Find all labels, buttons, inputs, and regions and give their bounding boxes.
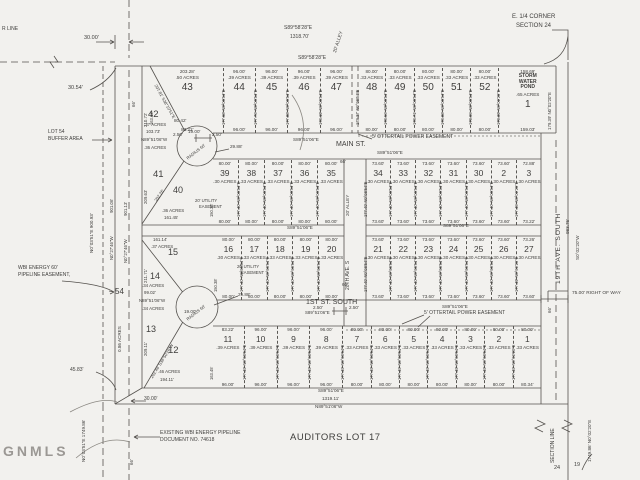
- lot-20-acres: .33 ACRES: [320, 255, 343, 260]
- lot-45-acres: .39 ACRES: [260, 75, 283, 80]
- existing-pipeline-label-1: EXISTING WBI ENERGY PIPELINE: [160, 431, 240, 436]
- lot-2-width-top: 80.00': [493, 327, 505, 332]
- lot-35-cell: 80.00'35.33 ACRES80.00'177.40' N0°08'54"…: [317, 160, 344, 225]
- lot-39-number: 39: [220, 168, 229, 178]
- lot-3-cell: 72.88'3.30 ACRES73.22'177.45' N0°02'20"E: [516, 160, 541, 225]
- stack-l-acres2: .34 ACRES: [142, 307, 164, 312]
- lot-30-number: 30: [474, 168, 483, 178]
- lot-52-cell: 80.00'.33 ACRES5280.00'179.05' N0°08'54"…: [470, 68, 498, 133]
- lot-26-width-bottom: 73.60': [498, 294, 510, 299]
- lot-39-width-top: 80.00': [219, 161, 231, 166]
- lot-34-side-dim: 177.40' N0°08'54"E: [363, 182, 368, 217]
- lot-22-cell: 73.60'22.30 ACRES73.60'177.40' N0°08'54"…: [390, 236, 415, 300]
- lot-22-number: 22: [398, 244, 407, 254]
- lot-35-number: 35: [326, 168, 335, 178]
- lot-24-number: 24: [449, 244, 458, 254]
- lot-37-width-top: 80.00': [272, 161, 284, 166]
- lot-51-side-dim: 178.88' N0°08'54"E: [440, 90, 445, 125]
- lot-43-acres: .50 ACRES: [176, 75, 199, 80]
- lot-40-width: 161.45': [164, 216, 178, 221]
- lot-21-acres: .30 ACRES: [366, 255, 389, 260]
- lot-27-width-top: 73.26': [523, 237, 535, 242]
- lot-16-width-top: 80.00': [222, 237, 234, 242]
- lot-4-width-bottom: 80.00': [436, 382, 448, 387]
- lot-1-number: 1: [525, 99, 531, 110]
- lot-47-side-dim: 178.19' N0°08'54"E: [318, 90, 323, 125]
- lot-2-width-bottom: 80.00': [493, 382, 505, 387]
- dim-66-c: 66': [132, 101, 137, 107]
- lot-49-number: 49: [394, 82, 405, 93]
- lot-3-side-dim: 177.45' N0°02'20"E: [514, 182, 519, 217]
- lot-18-cell: 80.00'18.33 ACRES80.00'177.40' N0°08'54"…: [267, 236, 293, 300]
- lot-37-cell: 80.00'37.33 ACRES80.00'177.40' N0°08'54"…: [264, 160, 291, 225]
- lot-18-number: 18: [275, 244, 284, 254]
- lot-46-acres: .39 ACRES: [292, 75, 315, 80]
- dim-45-83: 45.83': [70, 368, 83, 373]
- dist-bottom: 1319.11': [322, 397, 339, 402]
- stack-u-dist: 103.73': [146, 130, 160, 135]
- lot-2-side-dim: 177.40' N0°08'54"E: [489, 182, 494, 217]
- dim-179-39: 179.39' N0°02'20"E: [548, 92, 553, 130]
- lot-19-width-top: 80.00': [300, 237, 312, 242]
- lot-2-acres: .33 ACRES: [487, 345, 510, 350]
- section-line-label: SECTION LINE: [551, 428, 556, 463]
- lot-21-number: 21: [373, 244, 382, 254]
- lot-49-side-dim: 178.56' N0°08'54"E: [383, 90, 388, 125]
- lot-9-width-top: 96.00': [287, 327, 299, 332]
- lot-20-cell: 80.00'20.33 ACRES80.00'177.40' N0°08'54"…: [318, 236, 344, 300]
- lot-5-width-bottom: 80.00': [408, 382, 420, 387]
- lot-34-number: 34: [373, 168, 382, 178]
- lot-22-side-dim: 177.40' N0°08'54"E: [388, 257, 393, 292]
- lot-54-acres: 0.86 ACRES: [118, 326, 123, 352]
- lot-32-width-top: 73.60': [422, 161, 434, 166]
- dim-80-42: 80.42': [174, 119, 186, 124]
- lot-3-side-dim: 177.40' N0°08'54"E: [454, 345, 459, 380]
- lot-22-width-bottom: 73.60': [397, 294, 409, 299]
- lot-33-number: 33: [398, 168, 407, 178]
- lot-3-acres: .33 ACRES: [459, 345, 482, 350]
- lot-7-width-bottom: 80.00': [351, 382, 363, 387]
- lot-10-side-dim: 177.40' N0°08'54"E: [242, 345, 247, 380]
- dim-66-e: 66': [548, 307, 553, 313]
- section-19-number: 19: [574, 463, 580, 469]
- bearing-bottom-2: N89°51'06"W: [315, 405, 342, 410]
- lot-46-number: 46: [298, 82, 309, 93]
- dist-top: 1318.70': [290, 35, 309, 40]
- lot-4-cell: 80.00'4.33 ACRES80.00'177.40' N0°08'54"E: [427, 326, 455, 388]
- lot-25-cell: 73.60'25.30 ACRES73.60'177.40' N0°08'54"…: [466, 236, 491, 300]
- lot-44-width-top: 96.00': [233, 69, 245, 74]
- lot-34-width-top: 73.60': [372, 161, 384, 166]
- lot-16-acres: .30 ACRES: [217, 255, 240, 260]
- lot-24-width-top: 73.60': [447, 237, 459, 242]
- lot-9-side-dim: 177.40' N0°08'54"E: [275, 345, 280, 380]
- lot-31-cell: 73.60'31.30 ACRES73.60'177.40' N0°08'54"…: [440, 160, 465, 225]
- lot-12-acres: .46 ACRES: [158, 370, 180, 375]
- lot-23-acres: .30 ACRES: [417, 255, 440, 260]
- lot-25-acres: .30 ACRES: [467, 255, 490, 260]
- lot-51-acres: .33 ACRES: [445, 75, 468, 80]
- utility-easement-2b: EASEMENT: [241, 271, 264, 275]
- lot-30-side-dim: 177.40' N0°08'54"E: [464, 182, 469, 217]
- utility-easement-1a: 20' UTILITY: [195, 199, 217, 203]
- lot-20-width-top: 80.00': [325, 237, 337, 242]
- lot-51-width-top: 80.00': [450, 69, 462, 74]
- lot-3-width-top: 80.00': [464, 327, 476, 332]
- lot-5-number: 5: [411, 334, 416, 344]
- lot-39-acres: .30 ACRES: [213, 179, 236, 184]
- lot-24-side-dim: 177.40' N0°08'54"E: [438, 257, 443, 292]
- lot-10-number: 10: [256, 334, 265, 344]
- lot-52-width-top: 80.00': [479, 69, 491, 74]
- lot-50-number: 50: [423, 82, 434, 93]
- lot-23-side-dim: 177.40' N0°08'54"E: [413, 257, 418, 292]
- lot-14-number: 14: [150, 272, 160, 281]
- lot-1-width-top: 80.00': [521, 327, 533, 332]
- lot-44-cell: 96.00'.39 ACRES4496.00'177.68' N0°08'54"…: [223, 68, 255, 133]
- lot-11-width-bottom: 96.00': [222, 382, 234, 387]
- plat-map: 203.28'.50 ACRES4383.22'163.33'96.00'.39…: [0, 0, 640, 480]
- 19th-ave-south-label: 19TH AVE. SOUTH: [556, 213, 563, 284]
- lot-17-acres: .33 ACRES: [243, 255, 266, 260]
- lot-35-side-dim: 177.40' N0°08'54"E: [315, 182, 320, 217]
- lot-26-side-dim: 177.40' N0°08'54"E: [489, 257, 494, 292]
- lot-24-width-bottom: 73.60': [447, 294, 459, 299]
- lot-34-acres: .30 ACRES: [366, 179, 389, 184]
- bearing-bottom-1: S89°51'06"E: [318, 389, 344, 394]
- lot-20-side-dim: 177.40' N0°08'54"E: [316, 257, 321, 292]
- lot-2-side-dim: 177.40' N0°08'54"E: [482, 345, 487, 380]
- lot-8-cell: 96.00'8.39 ACRES96.00'177.40' N0°08'54"E: [309, 326, 342, 388]
- lot-44-number: 44: [234, 82, 245, 93]
- lot-2-number: 2: [497, 334, 502, 344]
- lot-12-width: 194.11': [160, 378, 174, 383]
- right-of-way-label: 75.00' RIGHT OF WAY: [572, 291, 621, 296]
- lot-27-side-dim: 177.49' N0°02'20"E: [514, 257, 519, 292]
- lot-31-side-dim: 177.40' N0°08'54"E: [438, 182, 443, 217]
- lot-48-cell: 80.00'.33 ACRES4880.00'178.37' N0°08'54"…: [358, 68, 385, 133]
- lot-1-side-dim: 177.40' N0°02'20"E: [511, 345, 516, 380]
- lot-5-cell: 80.00'5.33 ACRES80.00'177.40' N0°08'54"E: [399, 326, 427, 388]
- east-quarter-corner-1: E. 1/4 CORNER: [512, 14, 555, 20]
- lot-10-cell: 96.00'10.39 ACRES96.00'177.40' N0°08'54"…: [244, 326, 277, 388]
- lot-31-acres: .30 ACRES: [442, 179, 465, 184]
- stack-u-acres2: .36 ACRES: [144, 146, 166, 151]
- stack-l-acres1: .34 ACRES: [142, 284, 164, 289]
- lot-22-acres: .30 ACRES: [392, 255, 415, 260]
- bearing-west-a: N0°27'46"W: [110, 236, 115, 260]
- lot-51-width-bottom: 80.00': [450, 127, 462, 132]
- lot-1-side-dim: 179.39' N0°02'20"E: [496, 90, 501, 125]
- bearing-1st-st-e: S89°51'06"E: [442, 305, 468, 310]
- lot-45-cell: 96.00'.39 ACRES4596.00'177.76' N0°08'54"…: [255, 68, 287, 133]
- lot-27-width-bottom: 73.60': [523, 294, 535, 299]
- dim-30ft-bottom: 30.00': [144, 397, 157, 402]
- lot-27-number: 27: [524, 244, 533, 254]
- lot-38-width-top: 80.00': [245, 161, 257, 166]
- lot-11-number: 11: [223, 334, 232, 344]
- lot-9-width-bottom: 96.00': [287, 382, 299, 387]
- stack-l-dist: 99.02': [144, 291, 156, 296]
- dim-66-b: 66': [342, 283, 348, 288]
- dim-west-1749: N0°03'51"E 1749.86': [82, 420, 87, 462]
- bearing-s00220: S0°02'20"W: [576, 235, 581, 260]
- lot-8-width-top: 96.00': [320, 327, 332, 332]
- lot-23-number: 23: [424, 244, 433, 254]
- lot-5-width-top: 80.00': [408, 327, 420, 332]
- lot-49-width-bottom: 80.00': [394, 127, 406, 132]
- lot-38-width-bottom: 80.00': [245, 219, 257, 224]
- lot-25-width-top: 73.60': [472, 237, 484, 242]
- lot-3-number: 3: [468, 334, 473, 344]
- lot-14-side-dim: 211.71': [144, 269, 149, 283]
- east-quarter-corner-2: SECTION 24: [516, 23, 551, 29]
- block-row-b-west: 80.00'39.30 ACRES80.00'150.38'80.00'38.3…: [212, 160, 344, 225]
- dim-250-c: 2.50': [313, 306, 323, 311]
- lot-47-acres: .39 ACRES: [325, 75, 348, 80]
- lot-44-side-dim: 177.68' N0°08'54"E: [221, 90, 226, 125]
- lot-19-side-dim: 177.40' N0°08'54"E: [290, 257, 295, 292]
- lot-1-name-line: POND: [521, 85, 535, 91]
- lot-1-cell: 80.00'1.33 ACRES80.34'177.40' N0°02'20"E: [513, 326, 541, 388]
- lot-6-width-bottom: 80.00': [379, 382, 391, 387]
- lot-33-width-bottom: 73.60': [397, 219, 409, 224]
- lot-36-acres: .33 ACRES: [293, 179, 316, 184]
- utility-easement-1b: EASEMENT: [199, 205, 222, 209]
- lot-23-cell: 73.60'23.30 ACRES73.60'177.40' N0°08'54"…: [415, 236, 440, 300]
- lot-16-number: 16: [224, 244, 233, 254]
- lot-33-cell: 73.60'33.30 ACRES73.60'177.40' N0°08'54"…: [390, 160, 415, 225]
- lot-36-width-bottom: 80.00': [298, 219, 310, 224]
- lot-1-acres: .33 ACRES: [516, 345, 539, 350]
- lot-3-acres: .30 ACRES: [517, 179, 540, 184]
- lot-9-number: 9: [291, 334, 296, 344]
- lot-48-width-top: 80.00': [365, 69, 377, 74]
- bearing-1st-st: S89°51'06"E: [305, 311, 330, 316]
- lot-2-number: 2: [501, 168, 506, 178]
- lot-24-cell: 73.60'24.30 ACRES73.60'177.40' N0°08'54"…: [440, 236, 465, 300]
- auditors-lot-title: AUDITORS LOT 17: [290, 433, 381, 443]
- lot-50-side-dim: 178.71' N0°08'54"E: [412, 90, 417, 125]
- lot-30-width-bottom: 73.60': [472, 219, 484, 224]
- lot-50-width-bottom: 80.00': [422, 127, 434, 132]
- lot-25-width-bottom: 73.60': [472, 294, 484, 299]
- lot-39-cell: 80.00'39.30 ACRES80.00'150.38': [212, 160, 238, 225]
- existing-pipeline-label-2: DOCUMENT NO. 74618: [160, 438, 214, 443]
- lot-7-number: 7: [355, 334, 360, 344]
- lot-31-width-top: 73.60': [447, 161, 459, 166]
- lot-1-width-bottom: 80.34': [521, 382, 533, 387]
- lot-4-number: 4: [440, 334, 445, 344]
- lot-48-side-dim: 178.37' N0°08'54"E: [355, 90, 360, 125]
- lot-3-cell: 80.00'3.33 ACRES80.00'177.40' N0°08'54"E: [456, 326, 484, 388]
- lot-46-width-top: 96.00': [298, 69, 310, 74]
- dim-19-lower: 19.00': [184, 310, 196, 315]
- lot-32-acres: .30 ACRES: [417, 179, 440, 184]
- lot-1-width-bottom: 159.03': [520, 127, 535, 132]
- lot-41-side-dim: 209.63': [144, 190, 149, 204]
- lot-13-number: 13: [146, 325, 156, 334]
- lot-2-width-bottom: 73.60': [498, 219, 510, 224]
- lot-11-side-dim: 163.45': [209, 367, 214, 380]
- bearing-mid-e: S89°51'06"E: [443, 224, 469, 229]
- lot-47-cell: 96.00'.39 ACRES4796.00'178.19' N0°08'54"…: [320, 68, 352, 133]
- dim-250-d: 2.50': [349, 306, 359, 311]
- lot-3-width-top: 72.88': [523, 161, 535, 166]
- lot-26-number: 26: [499, 244, 508, 254]
- alley-label-mid: 20' ALLEY: [346, 195, 351, 216]
- dim-west-900: N0°03'51"E 900.93': [90, 213, 95, 253]
- lot-47-width-bottom: 96.00': [330, 127, 342, 132]
- lot-52-side-dim: 179.05' N0°08'54"E: [468, 90, 473, 125]
- dim-19-upper: 19.00': [188, 130, 200, 135]
- lot-49-width-top: 80.00': [394, 69, 406, 74]
- lot-51-number: 51: [451, 82, 462, 93]
- lot-17-width-top: 80.00': [248, 237, 260, 242]
- lot-6-cell: 80.00'6.33 ACRES80.00'177.40' N0°08'54"E: [371, 326, 399, 388]
- lot-47-width-top: 96.00': [330, 69, 342, 74]
- lot-36-side-dim: 177.40' N0°08'54"E: [289, 182, 294, 217]
- lot-49-cell: 80.00'.33 ACRES4980.00'178.56' N0°08'54"…: [385, 68, 413, 133]
- lot-48-width-bottom: 80.00': [365, 127, 377, 132]
- lot-21-side-dim: 177.40' N0°08'54"E: [363, 257, 368, 292]
- ottertail-easement-lower: 5' OTTERTAIL POWER EASEMENT: [424, 311, 505, 316]
- utility-easement-2a: 20' UTILITY: [237, 265, 259, 269]
- lot-15-width: 161.14': [153, 238, 167, 243]
- stack-u-bearing: N89°51'06"W: [141, 138, 167, 143]
- lot-46-width-bottom: 96.00': [298, 127, 310, 132]
- lot-37-acres: .33 ACRES: [266, 179, 289, 184]
- lot-8-side-dim: 177.40' N0°08'54"E: [307, 345, 312, 380]
- lot-23-width-bottom: 73.60': [422, 294, 434, 299]
- lot-35-acres: .33 ACRES: [320, 179, 343, 184]
- lot-45-side-dim: 177.76' N0°08'54"E: [253, 90, 258, 125]
- lot-9-acres: .39 ACRES: [282, 345, 305, 350]
- lot-4-acres: .33 ACRES: [430, 345, 453, 350]
- lot-31-number: 31: [449, 168, 458, 178]
- lot-45-width-top: 96.00': [265, 69, 277, 74]
- lot-37-side-dim: 177.40' N0°08'54"E: [262, 182, 267, 217]
- wbi-easement-label-1: WBI ENERGY 60': [18, 266, 58, 271]
- dim-250-b: 2.50': [212, 133, 222, 138]
- lot-19-number: 19: [301, 244, 310, 254]
- lot-33-acres: .30 ACRES: [392, 179, 415, 184]
- lot-10-acres: .39 ACRES: [249, 345, 272, 350]
- lot-6-acres: .33 ACRES: [374, 345, 397, 350]
- lot-10-width-bottom: 96.00': [255, 382, 267, 387]
- lot-37-number: 37: [273, 168, 282, 178]
- dim-30-54: 30.54': [68, 86, 83, 92]
- lot-45-number: 45: [266, 82, 277, 93]
- lot-47-number: 47: [331, 82, 342, 93]
- lot-4-side-dim: 177.40' N0°08'54"E: [425, 345, 430, 380]
- lot-18-width-bottom: 80.00': [274, 294, 286, 299]
- block-row-a-east: 80.00'.33 ACRES4880.00'178.37' N0°08'54"…: [358, 68, 556, 133]
- lot-27-cell: 73.26'27.30 ACRES73.60'177.49' N0°02'20"…: [516, 236, 541, 300]
- section-24-number: 24: [554, 466, 560, 472]
- bearing-west-b: N0°27'46"W: [124, 239, 129, 263]
- lot-52-number: 52: [479, 82, 490, 93]
- gnmls-watermark: GNMLS: [3, 444, 69, 459]
- lot-20-number: 20: [327, 244, 336, 254]
- lot-15-acres: .37 ACRES: [151, 245, 173, 250]
- lot-32-side-dim: 177.40' N0°08'54"E: [413, 182, 418, 217]
- lot-16-side-dim: 150.38': [213, 279, 218, 292]
- lot-40-number: 40: [173, 186, 183, 195]
- lot-5-acres: .33 ACRES: [402, 345, 425, 350]
- lot-40-acres: .36 ACRES: [162, 209, 184, 214]
- lot-11-width-top: 83.22': [222, 327, 234, 332]
- lot-21-cell: 73.60'21.30 ACRES73.60'177.40' N0°08'54"…: [366, 236, 390, 300]
- lot-30-width-top: 73.60': [472, 161, 484, 166]
- lot-6-side-dim: 177.40' N0°08'54"E: [369, 345, 374, 380]
- bearing-top-2: S89°58'28"E: [298, 56, 326, 61]
- lot-18-width-top: 80.00': [274, 237, 286, 242]
- lot-36-width-top: 80.00': [298, 161, 310, 166]
- lot-1-number: 1: [525, 334, 530, 344]
- lot-26-acres: .30 ACRES: [492, 255, 515, 260]
- block-row-b-east: 73.60'34.30 ACRES73.60'177.40' N0°08'54"…: [366, 160, 541, 225]
- lot-8-number: 8: [324, 334, 329, 344]
- lot-26-width-top: 73.60': [498, 237, 510, 242]
- dim-250-a: 2.50': [173, 133, 183, 138]
- lot-48-acres: .33 ACRES: [360, 75, 383, 80]
- lot-35-width-bottom: 80.00': [325, 219, 337, 224]
- dim-west-901-06: 901.06': [110, 199, 115, 213]
- lot-21-width-top: 73.60': [372, 237, 384, 242]
- lot-43-number: 43: [182, 82, 193, 93]
- lot-4-width-top: 80.00': [436, 327, 448, 332]
- lot-17-number: 17: [249, 244, 258, 254]
- dim-30ft-top: 30.00': [84, 36, 99, 42]
- lot-5-side-dim: 177.40' N0°08'54"E: [397, 345, 402, 380]
- dim-983-76: 983.76': [566, 219, 571, 234]
- quarter-line-label: R LINE: [2, 27, 18, 32]
- lot-7-side-dim: 177.40' N0°08'54"E: [340, 345, 345, 380]
- lot-9-cell: 96.00'9.39 ACRES96.00'177.40' N0°08'54"E: [277, 326, 310, 388]
- bearing-mid-w: S89°51'06"E: [287, 226, 313, 231]
- lot54-buffer-label-2: BUFFER AREA: [48, 137, 83, 142]
- lot-7-width-top: 80.00': [351, 327, 363, 332]
- lot-13-side-dim: 209.11': [144, 342, 149, 356]
- lot-35-width-top: 80.00': [325, 161, 337, 166]
- lot-42-number: 42: [148, 110, 159, 120]
- lot-2-width-top: 73.60': [498, 161, 510, 166]
- lot-23-width-top: 73.60': [422, 237, 434, 242]
- lot-32-cell: 73.60'32.30 ACRES73.60'177.40' N0°08'54"…: [415, 160, 440, 225]
- lot-38-side-dim: 177.40' N0°08'54"E: [236, 182, 241, 217]
- lot-6-number: 6: [383, 334, 388, 344]
- lot-38-cell: 80.00'38.33 ACRES80.00'177.40' N0°08'54"…: [238, 160, 265, 225]
- lot-33-width-top: 73.60': [397, 161, 409, 166]
- lot-42-side-dim: 210.72': [144, 113, 149, 127]
- lot-50-acres: .33 ACRES: [417, 75, 440, 80]
- lot-6-width-top: 80.00': [379, 327, 391, 332]
- lot-41-number: 41: [153, 170, 164, 180]
- stack-l-bearing: N89°51'06"W: [139, 299, 165, 304]
- bearing-main-e: S89°51'06"E: [377, 151, 403, 156]
- block-row-c-east: 73.60'21.30 ACRES73.60'177.40' N0°08'54"…: [366, 236, 541, 300]
- lot-2-acres: .30 ACRES: [492, 179, 515, 184]
- lot-30-acres: .30 ACRES: [467, 179, 490, 184]
- lot-27-acres: .30 ACRES: [517, 255, 540, 260]
- lot-24-acres: .30 ACRES: [442, 255, 465, 260]
- lot-18-acres: .33 ACRES: [268, 255, 291, 260]
- lot-8-acres: .39 ACRES: [315, 345, 338, 350]
- lot-19-cell: 80.00'19.33 ACRES80.00'177.40' N0°08'54"…: [292, 236, 318, 300]
- lot-3-width-bottom: 73.22': [523, 219, 535, 224]
